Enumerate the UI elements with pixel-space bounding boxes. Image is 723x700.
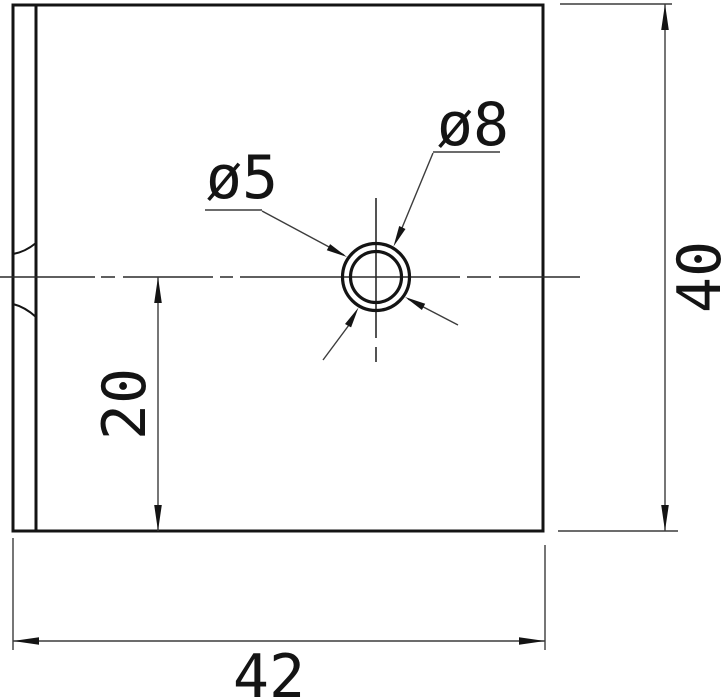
left-band-lower-break-mark xyxy=(13,304,36,317)
dim-counterbore-diameter: ø8 xyxy=(323,90,509,360)
dim-counterbore-diameter-label: ø8 xyxy=(437,90,509,160)
dim-height-arrow-bottom-icon xyxy=(661,505,669,531)
dim-height-arrow-top-icon xyxy=(661,4,669,30)
technical-drawing-canvas: ø5 ø8 20 42 xyxy=(0,0,723,700)
dim-offset-arrow-bottom-icon xyxy=(154,505,162,531)
dim-center-offset: 20 xyxy=(90,277,162,531)
dim-hole-diameter-label: ø5 xyxy=(206,143,278,213)
dim-counterbore-arrow-lower-icon xyxy=(345,308,359,328)
left-band-upper-break-mark xyxy=(13,243,36,254)
dim-plate-height: 40 xyxy=(558,4,723,531)
dim-offset-arrow-top-icon xyxy=(154,277,162,303)
dim-hole-arrow-upper-icon xyxy=(327,244,347,257)
dim-width-arrow-right-icon xyxy=(519,637,545,645)
drawing-sheet: ø5 ø8 20 42 xyxy=(0,0,723,700)
dim-counterbore-arrow-upper-icon xyxy=(394,226,406,247)
dim-plate-width: 42 xyxy=(13,538,545,700)
dim-plate-height-label: 40 xyxy=(665,241,723,313)
dim-center-offset-label: 20 xyxy=(90,368,160,440)
dim-width-arrow-left-icon xyxy=(13,637,39,645)
dim-plate-width-label: 42 xyxy=(233,642,305,700)
dim-hole-arrow-lower-icon xyxy=(405,297,425,310)
dim-hole-diameter: ø5 xyxy=(205,143,458,325)
plate-outline xyxy=(13,5,543,531)
dim-counterbore-tail-line xyxy=(323,325,349,360)
dim-counterbore-leader-line xyxy=(397,153,433,240)
